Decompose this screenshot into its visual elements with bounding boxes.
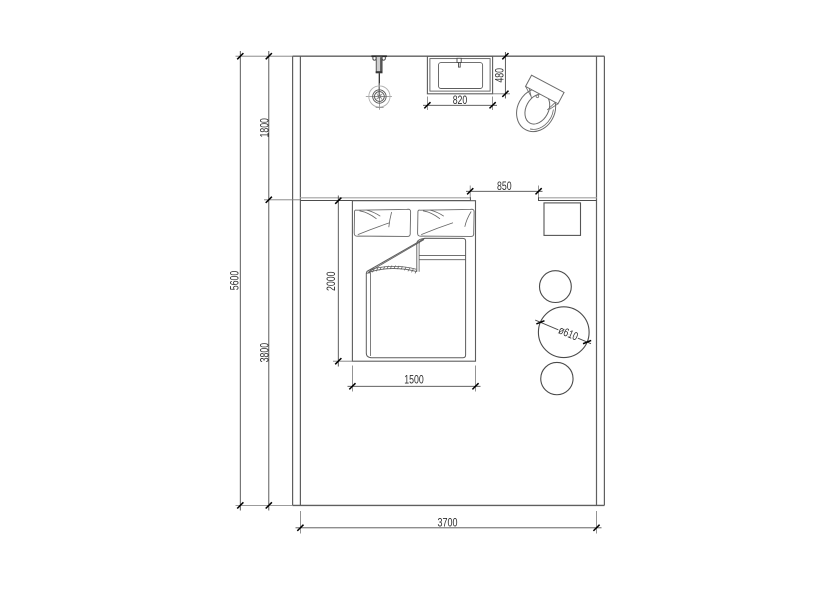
svg-text:2000: 2000: [326, 271, 338, 291]
svg-text:850: 850: [497, 181, 512, 193]
svg-text:5600: 5600: [229, 271, 241, 291]
svg-text:1500: 1500: [404, 375, 424, 387]
svg-text:3700: 3700: [438, 517, 458, 529]
svg-text:480: 480: [494, 68, 506, 83]
svg-text:3800: 3800: [259, 343, 271, 363]
svg-text:1800: 1800: [259, 118, 271, 138]
svg-text:820: 820: [453, 95, 468, 107]
